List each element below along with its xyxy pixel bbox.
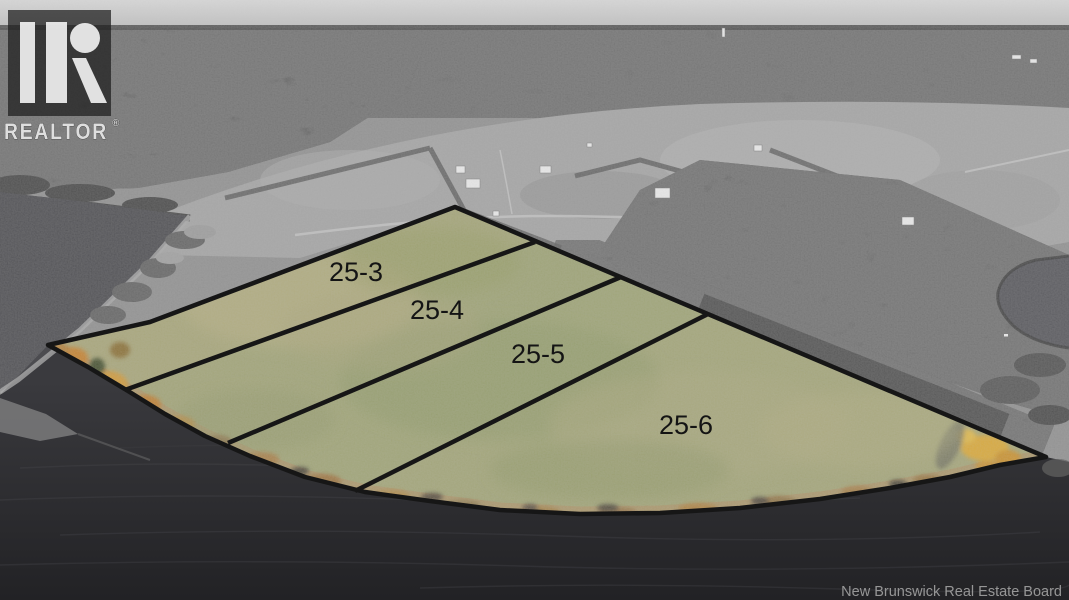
lot-label-25-6: 25-6	[659, 410, 713, 440]
lot-label-25-4: 25-4	[410, 295, 464, 325]
attribution-text: New Brunswick Real Estate Board	[841, 584, 1062, 600]
aerial-listing-photo: 25-3 25-4 25-5 25-6 REALTOR ® New Brunsw…	[0, 0, 1069, 600]
registered-mark: ®	[112, 118, 120, 129]
realtor-wordmark: REALTOR ®	[4, 118, 120, 144]
realtor-watermark: REALTOR ®	[4, 10, 120, 144]
lot-label-25-5: 25-5	[511, 339, 565, 369]
lot-label-25-3: 25-3	[329, 257, 383, 287]
aerial-photo: 25-3 25-4 25-5 25-6 REALTOR ® New Brunsw…	[0, 0, 1069, 600]
